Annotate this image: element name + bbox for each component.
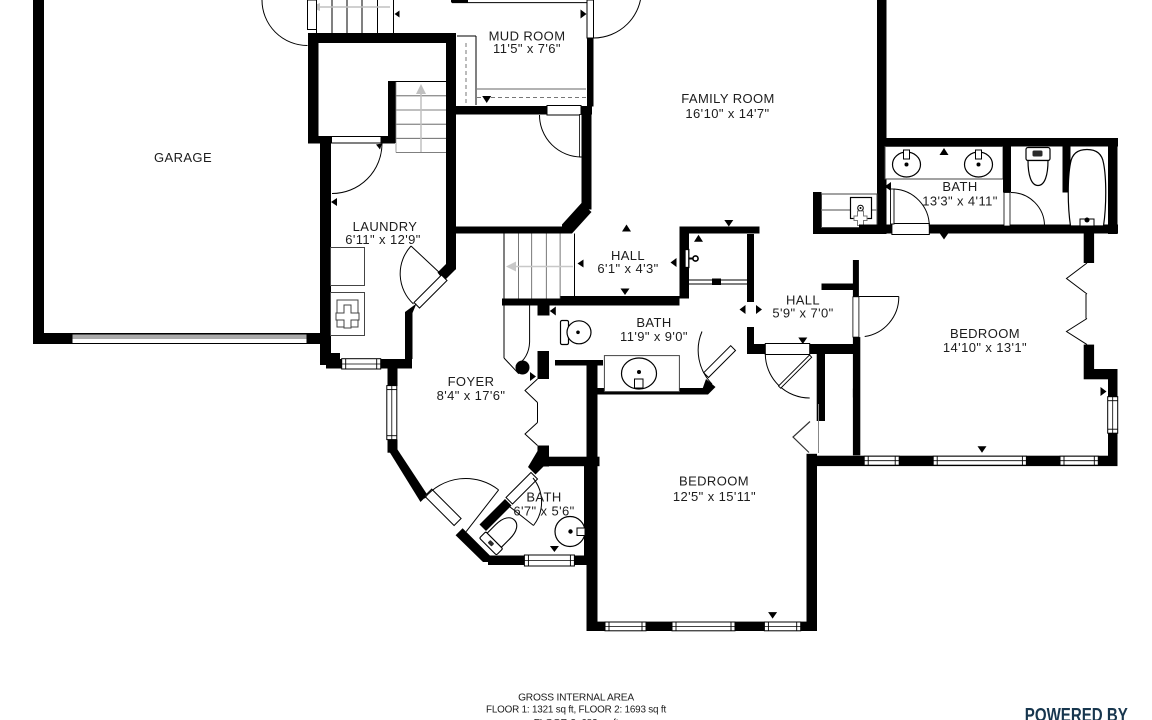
- svg-text:11'9" x 9'0": 11'9" x 9'0": [620, 329, 688, 344]
- svg-text:6'11" x 12'9": 6'11" x 12'9": [345, 232, 421, 247]
- svg-text:BATH: BATH: [526, 490, 561, 505]
- svg-text:14'10" x 13'1": 14'10" x 13'1": [943, 340, 1027, 355]
- svg-text:BATH: BATH: [942, 179, 977, 194]
- svg-text:13'3" x 4'11": 13'3" x 4'11": [922, 194, 998, 209]
- svg-text:BATH: BATH: [636, 315, 671, 330]
- svg-text:FOYER: FOYER: [448, 374, 495, 389]
- svg-text:FAMILY ROOM: FAMILY ROOM: [681, 91, 775, 106]
- svg-text:12'5" x 15'11": 12'5" x 15'11": [673, 489, 756, 504]
- svg-text:8'4" x 17'6": 8'4" x 17'6": [437, 388, 506, 403]
- svg-text:FLOOR 1: 1321 sq ft, FLOOR 2:: FLOOR 1: 1321 sq ft, FLOOR 2: 1693 sq ft: [486, 705, 666, 716]
- svg-text:BEDROOM: BEDROOM: [950, 326, 1020, 341]
- svg-text:POWERED BY: POWERED BY: [1025, 705, 1128, 720]
- svg-text:GROSS INTERNAL AREA: GROSS INTERNAL AREA: [518, 693, 634, 704]
- svg-text:16'10" x 14'7": 16'10" x 14'7": [685, 106, 769, 121]
- svg-text:GARAGE: GARAGE: [154, 150, 212, 165]
- svg-text:6'7" x 5'6": 6'7" x 5'6": [513, 504, 574, 519]
- svg-text:11'5" x 7'6": 11'5" x 7'6": [493, 41, 561, 56]
- svg-text:BEDROOM: BEDROOM: [679, 474, 749, 489]
- svg-text:5'9" x 7'0": 5'9" x 7'0": [772, 306, 833, 321]
- svg-text:6'1" x 4'3": 6'1" x 4'3": [597, 261, 658, 276]
